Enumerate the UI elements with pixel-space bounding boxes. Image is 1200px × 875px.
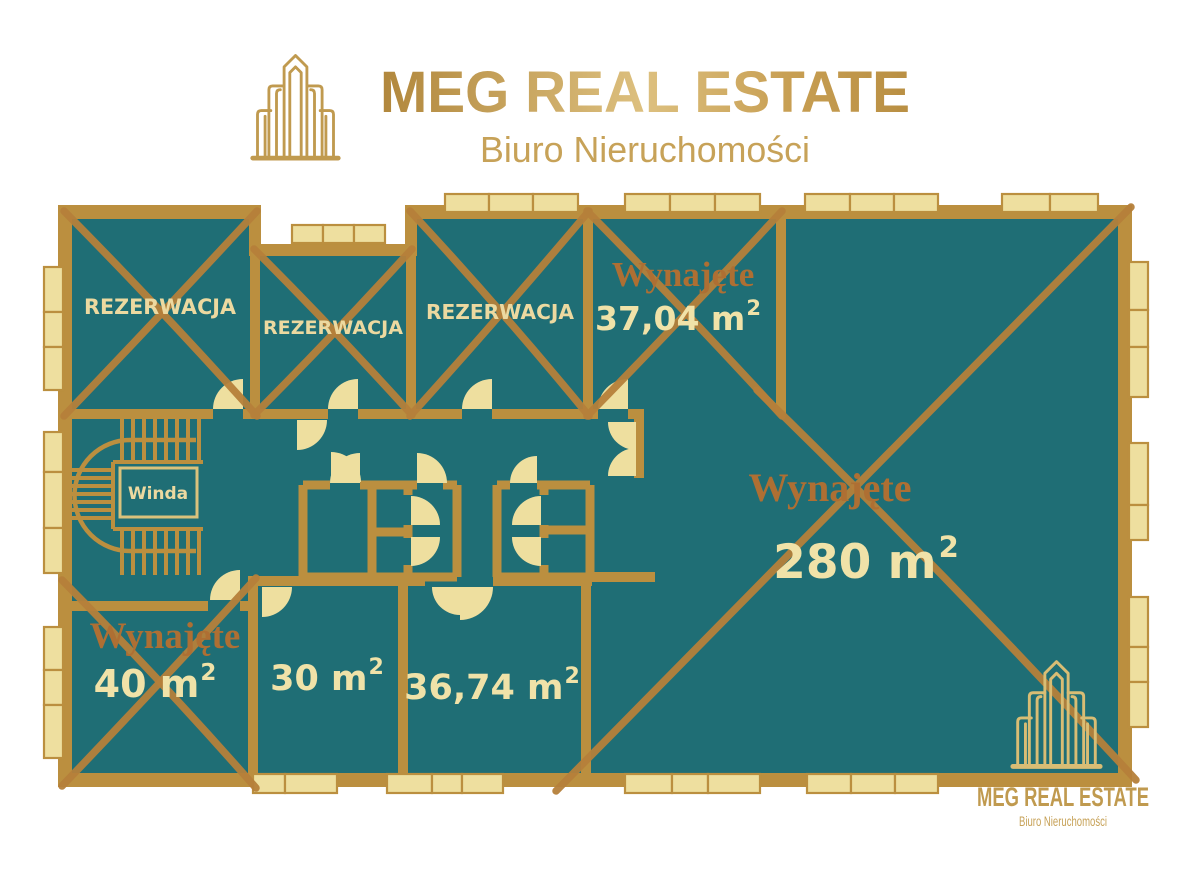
room-area: 280 m2 <box>773 530 959 590</box>
room-area: 37,04 m2 <box>595 296 761 338</box>
floorplan: Winda <box>44 190 1148 793</box>
windows-right <box>1129 262 1148 727</box>
room-status: Wynajęte <box>749 465 912 510</box>
floorplan-canvas: MEG REAL ESTATE Biuro Nieruchomości <box>0 0 1200 875</box>
room-30: 30 m2 <box>270 655 384 699</box>
building-icon <box>253 56 339 159</box>
brand-title: MEG REAL ESTATE <box>380 60 910 125</box>
room-status: Wynajęte <box>90 616 241 657</box>
windows-left <box>44 267 63 758</box>
floor-slab <box>58 205 1132 787</box>
footer-brand: MEG REAL ESTATE <box>977 782 1149 812</box>
footer-tagline: Biuro Nieruchomości <box>1019 814 1107 829</box>
room-rez1: REZERWACJA <box>84 295 237 319</box>
room-status: Wynajęte <box>612 255 755 294</box>
elevator-label: Winda <box>128 484 188 504</box>
header-logo: MEG REAL ESTATE Biuro Nieruchomości <box>253 56 910 171</box>
elevator: Winda <box>120 468 197 517</box>
room-rez3: REZERWACJA <box>426 300 575 324</box>
room-area: 40 m2 <box>94 660 217 706</box>
room-label: REZERWACJA <box>263 317 403 339</box>
room-label: REZERWACJA <box>426 300 575 324</box>
room-area: 30 m2 <box>270 655 384 699</box>
room-3674: 36,74 m2 <box>404 664 580 708</box>
page: MEG REAL ESTATE Biuro Nieruchomości <box>0 0 1200 875</box>
room-area: 36,74 m2 <box>404 664 580 708</box>
room-rez2: REZERWACJA <box>263 317 403 339</box>
room-label: REZERWACJA <box>84 295 237 319</box>
brand-tagline: Biuro Nieruchomości <box>480 129 810 170</box>
